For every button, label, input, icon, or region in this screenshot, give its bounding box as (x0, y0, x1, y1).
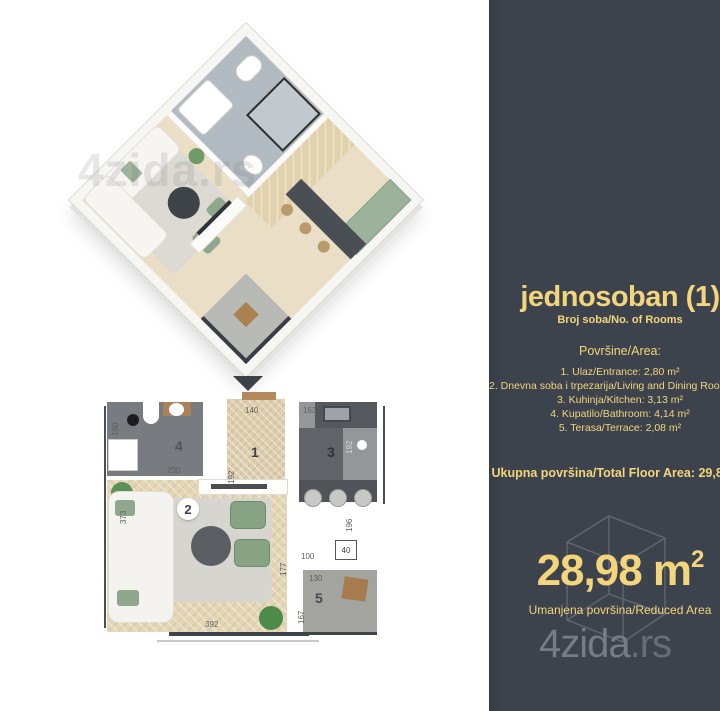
armchair (231, 502, 265, 528)
brand-tld: .rs (630, 622, 671, 666)
apartment-3d-render (69, 23, 423, 377)
bar-stool-3d (315, 238, 332, 255)
dim-terrace-gap: 100 (301, 552, 314, 561)
room-number-terrace: 5 (315, 590, 323, 606)
dim-kitchen-height: 192 (345, 441, 354, 454)
dim-terrace-outer-height: 177 (279, 563, 288, 576)
terrace-table-3d (233, 302, 258, 327)
cushion (117, 590, 139, 606)
kitchen-sink-icon (323, 406, 351, 422)
flyer-root: 4zida.rs (0, 0, 720, 711)
area-item: 5. Terasa/Terrace: 2,08 m² (489, 421, 720, 435)
dim-living-width: 392 (205, 620, 218, 629)
dim-terrace-height: 167 (297, 611, 306, 624)
washing-machine-3d (178, 80, 233, 135)
reduced-area-sup: 2 (691, 546, 703, 573)
dim-bath-width: 230 (167, 466, 180, 475)
areas-heading: Površine/Area: (489, 344, 720, 358)
brand-name: 4zida (539, 622, 630, 666)
dim-terrace-width: 130 (309, 574, 322, 583)
reduced-area-label: Umanjena površina/Reduced Area (489, 603, 720, 617)
apartment-type-title: jednosoban (1) (489, 281, 720, 314)
window-ledge (157, 640, 319, 642)
reduced-area-number: 28,98 (537, 546, 642, 595)
areas-list: 1. Ulaz/Entrance: 2,80 m² 2. Dnevna soba… (489, 365, 720, 435)
dim-hall-width: 140 (245, 406, 258, 415)
kitchen-lamp-icon (357, 440, 367, 450)
bar-stool-icon (355, 490, 371, 506)
basin-icon (169, 403, 184, 416)
toilet-3d (233, 53, 264, 84)
shaft-dim: 40 (342, 546, 351, 555)
floorplan-3d: 4zida.rs (68, 25, 424, 375)
area-item: 4. Kupatilo/Bathroom: 4,14 m² (489, 407, 720, 421)
kitchen-cabinet (299, 428, 343, 480)
total-floor-area: Ukupna površina/Total Floor Area: 29,88 … (489, 466, 720, 480)
window-right (383, 406, 385, 504)
coffee-table (191, 526, 231, 566)
arrow-down-icon (233, 376, 263, 391)
room-number-living: 2 (177, 498, 199, 520)
room-number-bathroom: 4 (175, 438, 183, 454)
tv-icon (211, 484, 267, 489)
reduced-area-value: 28,98 m2 (489, 546, 720, 596)
dim-kitchen-bottom: 196 (345, 519, 354, 532)
entrance-door (242, 392, 276, 400)
area-item: 2. Dnevna soba i trpezarija/Living and D… (489, 379, 720, 393)
bar-stool-icon (330, 490, 346, 506)
room-number-kitchen: 3 (327, 444, 335, 460)
terrace-table (342, 576, 369, 601)
watermark-overlay: 4zida.rs (78, 143, 257, 197)
terrace-railing (303, 632, 377, 635)
dim-bath-height: 180 (111, 423, 120, 436)
terrace-3d (201, 274, 292, 365)
toilet-icon (143, 402, 159, 424)
window-bottom (169, 632, 309, 636)
window-left (104, 406, 106, 628)
dim-kitchen-width: 163 (303, 406, 316, 415)
plant-icon (259, 606, 283, 630)
brand-logo: 4zida.rs (489, 622, 720, 667)
bar-stool-3d (297, 220, 314, 237)
sink-icon (127, 414, 139, 426)
floorplan-2d: 40 1 2 3 4 5 140 192 163 192 180 230 373… (99, 392, 387, 648)
area-item: 3. Kuhinja/Kitchen: 3,13 m² (489, 393, 720, 407)
room-number-hall: 1 (251, 444, 259, 460)
dim-living-height: 373 (119, 511, 128, 524)
info-panel: jednosoban (1) Broj soba/No. of Rooms Po… (489, 0, 720, 711)
dim-hall-height: 192 (227, 471, 236, 484)
shaft-box: 40 (335, 540, 357, 560)
washing-machine-icon (109, 440, 137, 470)
armchair (235, 540, 269, 566)
bar-stool-icon (305, 490, 321, 506)
rooms-count-label: Broj soba/No. of Rooms (489, 314, 720, 326)
room-bathroom (107, 402, 203, 476)
area-item: 1. Ulaz/Entrance: 2,80 m² (489, 365, 720, 379)
reduced-area-unit: m (653, 546, 691, 595)
room-kitchen (299, 402, 377, 502)
